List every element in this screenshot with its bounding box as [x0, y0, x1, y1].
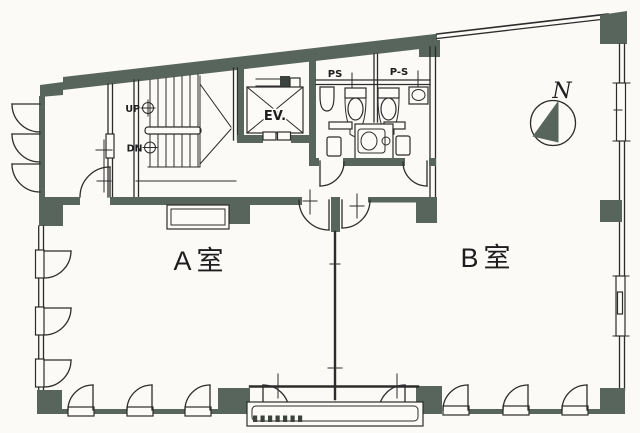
elevator-label: EV.	[264, 109, 286, 124]
stair-up-marker	[141, 100, 155, 116]
stairwell: UP DN	[125, 68, 237, 197]
wash-counter	[327, 122, 410, 160]
stair-down-marker	[143, 140, 157, 156]
top-right-corner-block	[600, 11, 627, 44]
top-wall-room-b	[419, 11, 627, 57]
room-a-door	[299, 190, 329, 230]
urinal	[320, 87, 334, 111]
bottom-right-corner-block	[600, 388, 625, 414]
room-b-door	[342, 194, 370, 228]
toilet-door-right	[403, 161, 427, 186]
stair-treads	[136, 74, 236, 181]
toilet-south-wall	[316, 158, 436, 166]
toilet-block: PS P-S	[309, 47, 436, 197]
compass: N	[531, 79, 576, 146]
left-wall-upper	[39, 96, 45, 203]
door-post	[331, 197, 340, 232]
hall-east-door	[106, 134, 114, 158]
stair-landing	[200, 76, 231, 167]
balcony-slab	[247, 402, 423, 426]
bottom-wall-block-a	[218, 388, 250, 414]
entrance-exterior-door-arcs	[12, 104, 40, 192]
toilet-door-left	[320, 161, 344, 186]
corridor-wall-east-block	[416, 197, 437, 223]
top-wall	[63, 34, 437, 90]
left-wall-windows	[36, 250, 72, 387]
bottom-windows-room-a	[68, 385, 211, 416]
partition-wall	[328, 232, 342, 399]
entrance-hall	[12, 84, 114, 197]
top-wall-left-step	[40, 82, 63, 97]
hand-sink	[409, 87, 428, 104]
stair-stringer	[145, 127, 201, 134]
compass-needle	[533, 101, 559, 143]
bottom-windows-room-b	[443, 385, 588, 415]
right-wall-pier	[600, 200, 622, 222]
hall-south-door	[80, 167, 110, 197]
stair-down-label: DN	[127, 144, 143, 155]
pipe-space-right-label: P-S	[390, 67, 409, 78]
storage-niche	[167, 205, 229, 229]
floor-plan: UP DN EV.	[0, 0, 640, 433]
room-a-label: A室	[173, 246, 228, 276]
toilet-wall-left	[309, 58, 316, 166]
pipe-space-left-label: PS	[328, 69, 343, 80]
stair-up-label: UP	[125, 104, 140, 115]
toilet-partition	[374, 54, 378, 122]
elevator-shaft-wall-bottom	[237, 135, 263, 143]
compass-north-label: N	[551, 79, 572, 104]
toilet-wall-right	[430, 47, 436, 197]
pipe-space-wall	[316, 80, 430, 85]
corridor-wall	[45, 197, 437, 232]
bottom-left-corner-block	[37, 390, 62, 414]
floor-plan-drawing: UP DN EV.	[0, 0, 640, 433]
elevator: EV.	[237, 69, 309, 143]
corridor-wall-block	[227, 197, 250, 224]
elevator-shaft-wall-left	[238, 69, 244, 143]
room-b-label: B室	[460, 243, 515, 273]
